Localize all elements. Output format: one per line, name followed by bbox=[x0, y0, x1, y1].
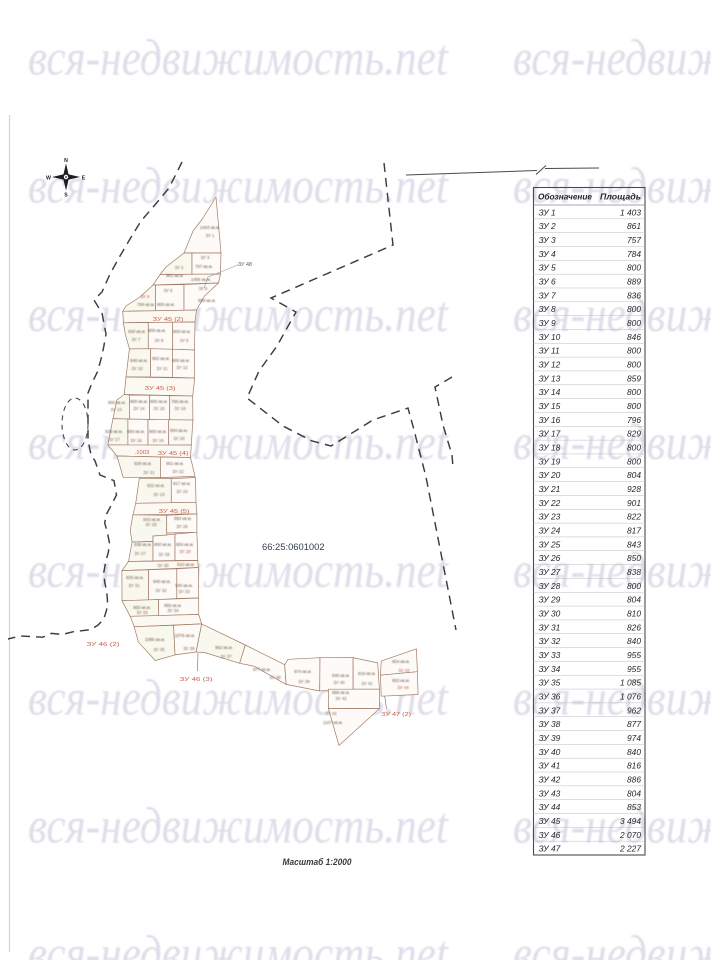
svg-text:ЗУ 10: ЗУ 10 bbox=[539, 332, 561, 342]
svg-text:859: 859 bbox=[627, 373, 641, 383]
svg-text:800: 800 bbox=[627, 360, 641, 370]
svg-text:757 кв.м.: 757 кв.м. bbox=[195, 264, 213, 269]
svg-text:ЗУ 17: ЗУ 17 bbox=[108, 437, 120, 442]
svg-text:800 кв.м.: 800 кв.м. bbox=[149, 429, 167, 434]
svg-text:ЗУ 12: ЗУ 12 bbox=[539, 360, 561, 370]
svg-text:796: 796 bbox=[627, 415, 641, 425]
svg-text:3 494: 3 494 bbox=[620, 816, 641, 826]
svg-text:ЗУ 47 (2): ЗУ 47 (2) bbox=[381, 712, 411, 718]
svg-text:ЗУ 4: ЗУ 4 bbox=[141, 294, 150, 299]
svg-text:ЗУ 15: ЗУ 15 bbox=[153, 406, 165, 411]
svg-text:вся-недвижимость.net: вся-недвижимость.net bbox=[28, 926, 450, 960]
svg-text:ЗУ 9: ЗУ 9 bbox=[539, 318, 556, 328]
svg-text:804 кв.м.: 804 кв.м. bbox=[392, 659, 410, 664]
svg-text:974: 974 bbox=[627, 733, 641, 743]
svg-text:800: 800 bbox=[627, 581, 641, 591]
svg-text:757: 757 bbox=[627, 235, 641, 245]
svg-text:800: 800 bbox=[627, 318, 641, 328]
svg-text:ЗУ 26: ЗУ 26 bbox=[176, 524, 188, 529]
svg-text:810: 810 bbox=[627, 609, 641, 619]
svg-text:861: 861 bbox=[627, 221, 641, 231]
svg-text:1 403: 1 403 bbox=[620, 207, 641, 217]
svg-text:ЗУ 34: ЗУ 34 bbox=[167, 608, 179, 613]
svg-text:ЗУ 31: ЗУ 31 bbox=[128, 583, 140, 588]
svg-text:822: 822 bbox=[627, 512, 641, 522]
svg-text:853 кв.м.: 853 кв.м. bbox=[392, 678, 410, 683]
svg-text:ЗУ 5: ЗУ 5 bbox=[164, 288, 173, 293]
svg-text:S: S bbox=[64, 193, 68, 199]
svg-text:ЗУ 38: ЗУ 38 bbox=[539, 719, 561, 729]
svg-text:901: 901 bbox=[627, 498, 641, 508]
svg-text:826: 826 bbox=[627, 622, 641, 632]
svg-text:Обозначение: Обозначение bbox=[538, 192, 592, 202]
svg-text:ЗУ 25: ЗУ 25 bbox=[145, 522, 157, 527]
svg-text:ЗУ 16: ЗУ 16 bbox=[539, 415, 561, 425]
svg-text:843: 843 bbox=[627, 539, 641, 549]
svg-text:800: 800 bbox=[627, 263, 641, 273]
svg-text:ЗУ 16: ЗУ 16 bbox=[174, 406, 186, 411]
svg-text:974 кв.м.: 974 кв.м. bbox=[294, 669, 312, 674]
svg-text:ЗУ 36: ЗУ 36 bbox=[183, 646, 195, 651]
svg-text:838: 838 bbox=[627, 567, 641, 577]
svg-text:ЗУ 27: ЗУ 27 bbox=[134, 551, 146, 556]
svg-text:вся-недвижимость.net: вся-недвижимость.net bbox=[513, 159, 711, 215]
svg-text:ЗУ 30: ЗУ 30 bbox=[539, 609, 561, 619]
svg-text:ЗУ 8: ЗУ 8 bbox=[155, 338, 164, 343]
svg-text:861 кв.м.: 861 кв.м. bbox=[166, 273, 184, 278]
svg-text:ЗУ 46 (2): ЗУ 46 (2) bbox=[87, 642, 120, 648]
svg-text:ЗУ 29: ЗУ 29 bbox=[179, 549, 191, 554]
svg-text:ЗУ 13: ЗУ 13 bbox=[539, 373, 561, 383]
svg-text:ЗУ 2: ЗУ 2 bbox=[175, 265, 184, 270]
svg-text:800: 800 bbox=[627, 387, 641, 397]
svg-text:830 кв.м.: 830 кв.м. bbox=[128, 329, 146, 334]
svg-text:ЗУ 46 (3): ЗУ 46 (3) bbox=[180, 677, 213, 683]
svg-text:ЗУ 39: ЗУ 39 bbox=[539, 733, 561, 743]
svg-text:800 кв.м.: 800 кв.м. bbox=[108, 400, 126, 405]
svg-text:ЗУ 45: ЗУ 45 bbox=[539, 816, 561, 826]
svg-text:800: 800 bbox=[627, 456, 641, 466]
svg-text:800 кв.м.: 800 кв.м. bbox=[150, 399, 168, 404]
svg-text:817: 817 bbox=[627, 526, 641, 536]
svg-text:955: 955 bbox=[627, 650, 641, 660]
svg-text:846: 846 bbox=[627, 332, 641, 342]
svg-text:829 кв.м.: 829 кв.м. bbox=[105, 429, 123, 434]
svg-text:ЗУ 25: ЗУ 25 bbox=[539, 539, 561, 549]
svg-text:Площадь: Площадь bbox=[600, 192, 641, 202]
svg-text:ЗУ 28: ЗУ 28 bbox=[158, 552, 170, 557]
svg-text:E: E bbox=[82, 176, 86, 182]
svg-text:840 кв.м.: 840 кв.м. bbox=[153, 579, 171, 584]
svg-text:ЗУ 14: ЗУ 14 bbox=[539, 387, 561, 397]
svg-text:850 кв.м.: 850 кв.м. bbox=[174, 516, 192, 521]
svg-text:ЗУ 27: ЗУ 27 bbox=[539, 567, 561, 577]
svg-text:810 кв.м.: 810 кв.м. bbox=[177, 562, 195, 567]
svg-text:ЗУ 32: ЗУ 32 bbox=[155, 588, 167, 593]
svg-text:ЗУ 34: ЗУ 34 bbox=[539, 664, 561, 674]
svg-text:ЗУ 3: ЗУ 3 bbox=[539, 235, 556, 245]
svg-text:66:25:0601002: 66:25:0601002 bbox=[262, 541, 325, 552]
svg-text:ЗУ 45 (4): ЗУ 45 (4) bbox=[158, 451, 189, 457]
svg-text:ЗУ 31: ЗУ 31 bbox=[539, 622, 561, 632]
svg-text:ЗУ 23: ЗУ 23 bbox=[539, 512, 561, 522]
svg-text:886: 886 bbox=[627, 774, 641, 784]
svg-text:ЗУ 22: ЗУ 22 bbox=[539, 498, 561, 508]
svg-text:ЗУ 45 (2): ЗУ 45 (2) bbox=[153, 317, 184, 323]
svg-text:ЗУ 37: ЗУ 37 bbox=[539, 705, 561, 715]
svg-text:ЗУ 33: ЗУ 33 bbox=[136, 610, 148, 615]
svg-text:ЗУ 24: ЗУ 24 bbox=[176, 489, 188, 494]
svg-text:ЗУ 1: ЗУ 1 bbox=[206, 233, 215, 238]
svg-text:817 кв.м.: 817 кв.м. bbox=[173, 481, 191, 486]
svg-text:ЗУ 19: ЗУ 19 bbox=[539, 456, 561, 466]
svg-text:1403 кв.м.: 1403 кв.м. bbox=[200, 225, 220, 230]
svg-text:ЗУ 11: ЗУ 11 bbox=[157, 366, 169, 371]
svg-text:ЗУ 48: ЗУ 48 bbox=[238, 262, 252, 268]
svg-text:840: 840 bbox=[627, 636, 641, 646]
svg-text:1 085: 1 085 bbox=[620, 678, 641, 688]
svg-text:ЗУ 9: ЗУ 9 bbox=[180, 338, 189, 343]
svg-text:886 кв.м.: 886 кв.м. bbox=[332, 690, 350, 695]
svg-text:836: 836 bbox=[627, 290, 641, 300]
svg-text:ЗУ 35: ЗУ 35 bbox=[539, 678, 561, 688]
svg-text:W: W bbox=[46, 176, 51, 182]
svg-text:вся-недвижимость.net: вся-недвижимость.net bbox=[28, 31, 450, 87]
svg-text:800 кв.м.: 800 кв.м. bbox=[148, 328, 166, 333]
svg-text:ЗУ 33: ЗУ 33 bbox=[178, 589, 190, 594]
svg-text:ЗУ 14: ЗУ 14 bbox=[133, 406, 145, 411]
svg-text:ЗУ 21: ЗУ 21 bbox=[143, 470, 155, 475]
svg-text:889: 889 bbox=[627, 277, 641, 287]
svg-text:ЗУ 5: ЗУ 5 bbox=[539, 263, 556, 273]
svg-text:ЗУ 30: ЗУ 30 bbox=[157, 563, 169, 568]
svg-text:1456 кв.м.: 1456 кв.м. bbox=[191, 277, 211, 282]
svg-text:ЗУ 17: ЗУ 17 bbox=[539, 429, 561, 439]
svg-text:796 кв.м.: 796 кв.м. bbox=[171, 399, 189, 404]
svg-text:800: 800 bbox=[627, 443, 641, 453]
svg-text:ЗУ 4: ЗУ 4 bbox=[539, 249, 556, 259]
svg-text:ЗУ 29: ЗУ 29 bbox=[539, 595, 561, 605]
svg-text:вся-недвижимость.net: вся-недвижимость.net bbox=[28, 543, 450, 599]
svg-text:800 кв.м.: 800 кв.м. bbox=[157, 302, 175, 307]
svg-text:962: 962 bbox=[627, 705, 641, 715]
svg-text:889 кв.м.: 889 кв.м. bbox=[198, 298, 216, 303]
svg-text:ЗУ 40: ЗУ 40 bbox=[539, 747, 561, 757]
svg-text:955: 955 bbox=[627, 664, 641, 674]
svg-text:800: 800 bbox=[627, 304, 641, 314]
svg-text:ЗУ 22: ЗУ 22 bbox=[172, 469, 184, 474]
svg-text:1107 кв.м.: 1107 кв.м. bbox=[323, 720, 343, 725]
svg-text:ЗУ 40: ЗУ 40 bbox=[333, 680, 345, 685]
svg-text:Масштаб 1:2000: Масштаб 1:2000 bbox=[283, 857, 353, 868]
svg-text:800 кв.м.: 800 кв.м. bbox=[173, 329, 191, 334]
svg-text:800: 800 bbox=[627, 346, 641, 356]
svg-text:ЗУ 45 (3): ЗУ 45 (3) bbox=[145, 386, 176, 392]
svg-text:940 кв.м.: 940 кв.м. bbox=[175, 583, 193, 588]
svg-text:ЗУ 43: ЗУ 43 bbox=[539, 788, 561, 798]
svg-text:804: 804 bbox=[627, 788, 641, 798]
svg-text:ЗУ 20: ЗУ 20 bbox=[539, 470, 561, 480]
svg-text:ЗУ 43: ЗУ 43 bbox=[398, 668, 410, 673]
svg-text:ЗУ 13: ЗУ 13 bbox=[110, 407, 122, 412]
svg-text:784 кв.м.: 784 кв.м. bbox=[137, 302, 155, 307]
svg-text:ЗУ 6: ЗУ 6 bbox=[539, 277, 556, 287]
svg-text:ЗУ 12: ЗУ 12 bbox=[176, 365, 188, 370]
svg-text:800: 800 bbox=[627, 401, 641, 411]
svg-text:ЗУ 35: ЗУ 35 bbox=[153, 647, 165, 652]
svg-text:800 кв.м.: 800 кв.м. bbox=[127, 429, 145, 434]
svg-text:838 кв.м.: 838 кв.м. bbox=[134, 542, 152, 547]
svg-text:ЗУ 47: ЗУ 47 bbox=[539, 844, 561, 854]
svg-text:ЗУ 2: ЗУ 2 bbox=[539, 221, 556, 231]
svg-text:ЗУ 46: ЗУ 46 bbox=[539, 830, 561, 840]
svg-text:ЗУ 42: ЗУ 42 bbox=[335, 696, 347, 701]
svg-text:ЗУ 23: ЗУ 23 bbox=[153, 492, 165, 497]
svg-text:ЗУ 45 (5): ЗУ 45 (5) bbox=[159, 509, 190, 515]
svg-text:ЗУ 44: ЗУ 44 bbox=[539, 802, 561, 812]
svg-text:802 кв.м.: 802 кв.м. bbox=[152, 356, 170, 361]
svg-text:846 кв.м.: 846 кв.м. bbox=[130, 358, 148, 363]
svg-text:ЗУ 42: ЗУ 42 bbox=[325, 711, 337, 716]
svg-text:.1003: .1003 bbox=[135, 450, 150, 456]
svg-text:вся-недвижимость.net: вся-недвижимость.net bbox=[28, 799, 450, 855]
svg-text:ЗУ 36: ЗУ 36 bbox=[539, 691, 561, 701]
svg-text:вся-недвижимость.net: вся-недвижимость.net bbox=[28, 287, 450, 343]
svg-text:ЗУ 41: ЗУ 41 bbox=[539, 761, 561, 771]
svg-text:822 кв.м.: 822 кв.м. bbox=[147, 483, 165, 488]
svg-text:вся-недвижимость.net: вся-недвижимость.net bbox=[513, 31, 711, 87]
svg-text:853: 853 bbox=[627, 802, 641, 812]
svg-text:784: 784 bbox=[627, 249, 641, 259]
svg-text:ЗУ 18: ЗУ 18 bbox=[130, 438, 142, 443]
svg-text:804 кв.м.: 804 кв.м. bbox=[170, 428, 188, 433]
svg-text:ЗУ 7: ЗУ 7 bbox=[132, 337, 141, 342]
svg-text:N: N bbox=[64, 158, 68, 164]
svg-text:вся-недвижимость.net: вся-недвижимость.net bbox=[28, 415, 450, 471]
svg-text:826 кв.м.: 826 кв.м. bbox=[126, 575, 144, 580]
svg-text:ЗУ 42: ЗУ 42 bbox=[539, 774, 561, 784]
svg-text:804 кв.м.: 804 кв.м. bbox=[176, 542, 194, 547]
svg-text:ЗУ 1: ЗУ 1 bbox=[539, 207, 556, 217]
svg-text:ЗУ 7: ЗУ 7 bbox=[539, 290, 556, 300]
svg-text:840: 840 bbox=[627, 747, 641, 757]
svg-text:вся-недвижимость.net: вся-недвижимость.net bbox=[513, 926, 711, 960]
svg-text:928 кв.м.: 928 кв.м. bbox=[134, 461, 152, 466]
svg-text:800 кв.м.: 800 кв.м. bbox=[172, 358, 190, 363]
svg-text:ЗУ 44: ЗУ 44 bbox=[397, 685, 409, 690]
svg-text:ЗУ 19: ЗУ 19 bbox=[152, 438, 164, 443]
svg-text:2 227: 2 227 bbox=[619, 844, 641, 854]
svg-text:2 070: 2 070 bbox=[619, 830, 641, 840]
svg-text:1076 кв.м.: 1076 кв.м. bbox=[175, 633, 195, 638]
svg-text:816: 816 bbox=[627, 761, 641, 771]
svg-text:ЗУ 11: ЗУ 11 bbox=[539, 346, 560, 356]
svg-text:928: 928 bbox=[627, 484, 641, 494]
svg-text:800 кв.м.: 800 кв.м. bbox=[130, 399, 148, 404]
svg-text:ЗУ 18: ЗУ 18 bbox=[539, 443, 561, 453]
svg-text:816 кв.м.: 816 кв.м. bbox=[358, 671, 376, 676]
svg-text:ЗУ 21: ЗУ 21 bbox=[539, 484, 561, 494]
svg-text:ЗУ 8: ЗУ 8 bbox=[539, 304, 556, 314]
svg-text:ЗУ 33: ЗУ 33 bbox=[539, 650, 561, 660]
svg-text:ЗУ 28: ЗУ 28 bbox=[539, 581, 561, 591]
svg-text:ЗУ 6: ЗУ 6 bbox=[199, 286, 208, 291]
svg-text:ЗУ 26: ЗУ 26 bbox=[539, 553, 561, 563]
svg-text:877 кв.м.: 877 кв.м. bbox=[253, 667, 271, 672]
svg-text:ЗУ 41: ЗУ 41 bbox=[361, 681, 373, 686]
svg-text:ЗУ 24: ЗУ 24 bbox=[539, 526, 561, 536]
svg-text:ЗУ 15: ЗУ 15 bbox=[539, 401, 561, 411]
svg-text:850: 850 bbox=[627, 553, 641, 563]
svg-text:901 кв.м.: 901 кв.м. bbox=[166, 461, 184, 466]
svg-text:877: 877 bbox=[627, 719, 641, 729]
svg-text:840 кв.м.: 840 кв.м. bbox=[332, 673, 350, 678]
svg-text:ЗУ 38: ЗУ 38 bbox=[269, 675, 281, 680]
svg-text:ЗУ 37: ЗУ 37 bbox=[220, 654, 232, 659]
svg-text:804: 804 bbox=[627, 470, 641, 480]
svg-text:829: 829 bbox=[627, 429, 641, 439]
svg-text:ЗУ 20: ЗУ 20 bbox=[173, 436, 185, 441]
svg-text:804: 804 bbox=[627, 595, 641, 605]
svg-text:ЗУ 32: ЗУ 32 bbox=[539, 636, 561, 646]
svg-text:1 076: 1 076 bbox=[620, 691, 641, 701]
svg-text:800 кв.м.: 800 кв.м. bbox=[154, 542, 172, 547]
svg-text:1085 кв.м.: 1085 кв.м. bbox=[145, 637, 165, 642]
svg-text:ЗУ 39: ЗУ 39 bbox=[298, 679, 310, 684]
svg-text:ЗУ 3: ЗУ 3 bbox=[201, 255, 210, 260]
svg-text:ЗУ 10: ЗУ 10 bbox=[131, 366, 143, 371]
svg-text:962 кв.м.: 962 кв.м. bbox=[215, 645, 233, 650]
